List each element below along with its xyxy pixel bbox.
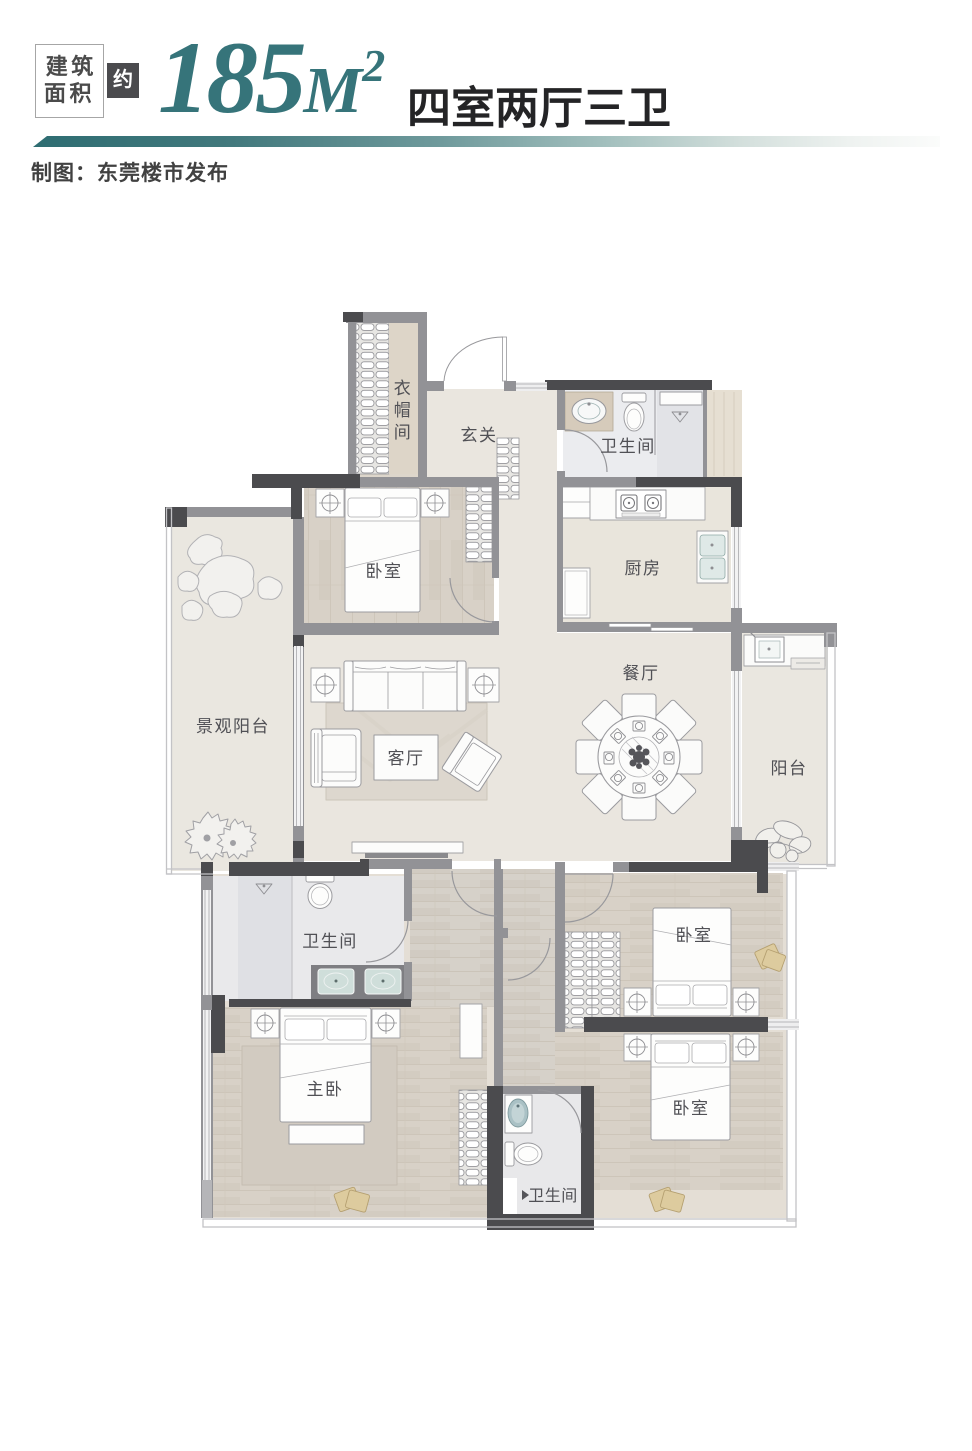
svg-text:帽: 帽: [394, 401, 413, 420]
svg-text:卫生间: 卫生间: [600, 437, 656, 456]
svg-text:卧室: 卧室: [366, 562, 403, 581]
svg-text:厨房: 厨房: [625, 559, 662, 578]
svg-text:景观阳台: 景观阳台: [196, 717, 270, 736]
svg-text:客厅: 客厅: [388, 749, 425, 768]
svg-text:间: 间: [394, 423, 413, 442]
svg-text:卧室: 卧室: [673, 1099, 710, 1118]
svg-text:卧室: 卧室: [676, 926, 713, 945]
svg-text:卫生间: 卫生间: [528, 1187, 578, 1205]
svg-text:阳台: 阳台: [771, 759, 808, 778]
svg-text:衣: 衣: [394, 379, 413, 398]
svg-text:主卧: 主卧: [307, 1080, 344, 1099]
svg-text:餐厅: 餐厅: [623, 664, 660, 683]
svg-text:玄关: 玄关: [461, 426, 498, 445]
svg-text:卫生间: 卫生间: [302, 932, 358, 951]
